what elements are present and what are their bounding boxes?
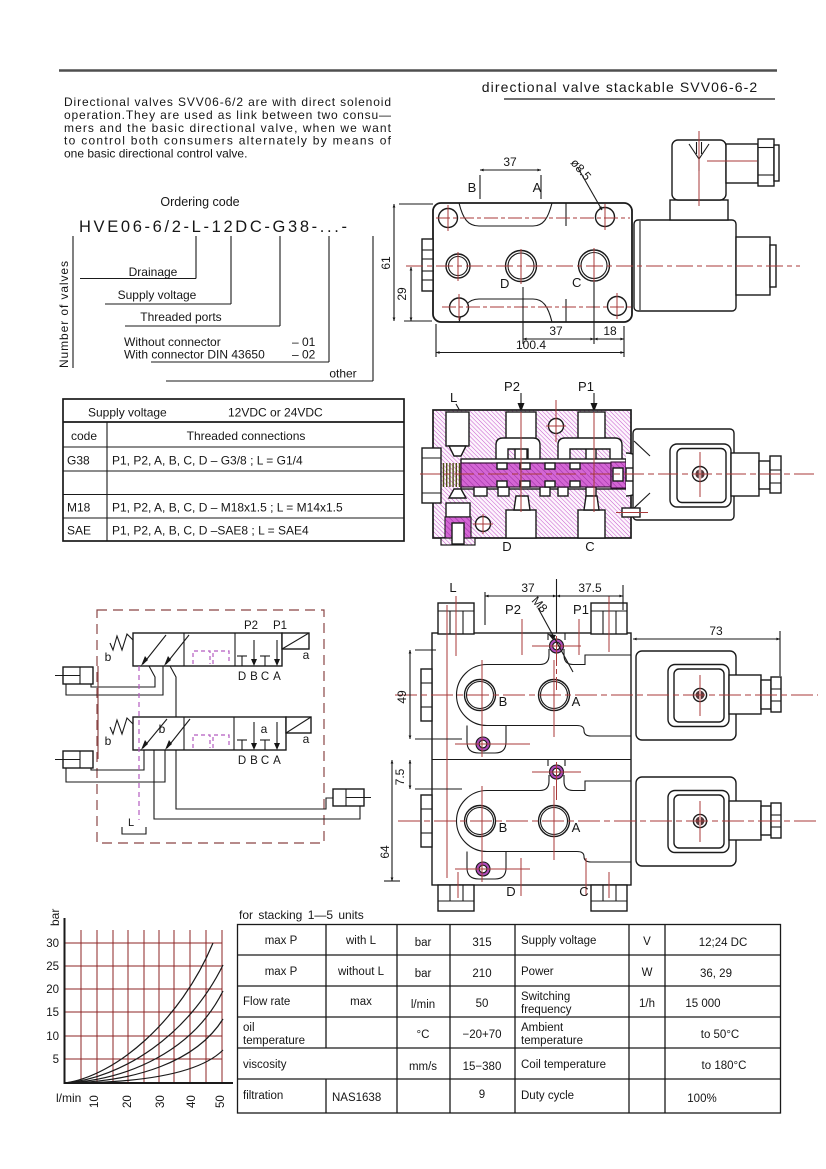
svg-text:SAE: SAE bbox=[67, 524, 91, 538]
svg-text:100.4: 100.4 bbox=[516, 338, 546, 352]
svg-text:12;24 DC: 12;24 DC bbox=[699, 937, 748, 949]
svg-text:L: L bbox=[450, 390, 457, 405]
svg-text:A: A bbox=[572, 694, 581, 709]
svg-text:b: b bbox=[159, 722, 166, 736]
svg-text:B: B bbox=[250, 671, 258, 683]
svg-text:20: 20 bbox=[122, 1095, 134, 1108]
svg-text:P1: P1 bbox=[273, 620, 287, 632]
svg-text:20: 20 bbox=[46, 984, 59, 996]
svg-text:A: A bbox=[572, 820, 581, 835]
svg-text:Supply voltage: Supply voltage bbox=[118, 288, 197, 302]
svg-text:bar: bar bbox=[415, 968, 432, 980]
svg-text:25: 25 bbox=[46, 961, 59, 973]
svg-text:D: D bbox=[238, 755, 246, 767]
svg-text:P2: P2 bbox=[505, 602, 521, 617]
svg-text:D: D bbox=[502, 539, 511, 554]
svg-text:temperature: temperature bbox=[521, 1035, 583, 1047]
svg-text:100%: 100% bbox=[687, 1093, 716, 1105]
svg-text:36, 29: 36, 29 bbox=[700, 968, 732, 980]
svg-text:Threaded ports: Threaded ports bbox=[140, 310, 221, 324]
svg-text:15: 15 bbox=[46, 1007, 59, 1019]
svg-text:315: 315 bbox=[472, 937, 491, 949]
svg-text:P1: P1 bbox=[578, 379, 594, 394]
svg-text:oil: oil bbox=[243, 1022, 255, 1034]
svg-text:Coil temperature: Coil temperature bbox=[521, 1059, 606, 1071]
svg-text:With connector DIN 43650: With connector DIN 43650 bbox=[124, 348, 265, 362]
svg-text:bar: bar bbox=[48, 909, 62, 926]
svg-text:Flow rate: Flow rate bbox=[243, 996, 290, 1008]
svg-text:max: max bbox=[350, 996, 372, 1008]
svg-text:B: B bbox=[499, 820, 508, 835]
svg-text:C: C bbox=[585, 539, 594, 554]
svg-text:to 50°C: to 50°C bbox=[701, 1029, 739, 1041]
svg-text:P2: P2 bbox=[504, 379, 520, 394]
svg-text:bar: bar bbox=[415, 937, 432, 949]
svg-text:50: 50 bbox=[215, 1095, 227, 1108]
svg-text:temperature: temperature bbox=[243, 1035, 305, 1047]
svg-text:D: D bbox=[500, 276, 509, 291]
svg-text:Ordering code: Ordering code bbox=[160, 195, 239, 209]
svg-text:37: 37 bbox=[521, 581, 535, 595]
svg-text:64: 64 bbox=[378, 845, 392, 859]
svg-text:18: 18 bbox=[603, 324, 617, 338]
svg-text:10: 10 bbox=[46, 1031, 59, 1043]
svg-text:C: C bbox=[579, 884, 588, 899]
svg-text:W: W bbox=[642, 967, 653, 979]
svg-text:viscosity: viscosity bbox=[243, 1059, 287, 1071]
svg-text:−20+70: −20+70 bbox=[462, 1029, 501, 1041]
svg-text:12VDC or 24VDC: 12VDC or 24VDC bbox=[228, 406, 323, 420]
svg-text:29: 29 bbox=[395, 287, 409, 301]
svg-text:Threaded connections: Threaded connections bbox=[187, 429, 306, 443]
svg-text:50: 50 bbox=[476, 998, 489, 1010]
svg-text:filtration: filtration bbox=[243, 1090, 283, 1102]
svg-text:P1, P2, A, B, C, D –SAE8 ; L =: P1, P2, A, B, C, D –SAE8 ; L = SAE4 bbox=[112, 524, 309, 538]
svg-text:mm/s: mm/s bbox=[409, 1061, 437, 1073]
svg-text:5: 5 bbox=[53, 1054, 59, 1066]
svg-text:30: 30 bbox=[46, 938, 59, 950]
svg-text:with L: with L bbox=[345, 935, 377, 947]
svg-text:one basic directional control: one basic directional control valve. bbox=[64, 147, 247, 161]
svg-text:l/min: l/min bbox=[411, 999, 435, 1011]
svg-text:D: D bbox=[238, 671, 246, 683]
svg-text:Supply voltage: Supply voltage bbox=[521, 935, 596, 947]
svg-text:mers and the basic directional: mers and the basic directional valve, wh… bbox=[64, 121, 392, 135]
svg-text:15 000: 15 000 bbox=[685, 998, 720, 1010]
svg-text:30: 30 bbox=[155, 1095, 167, 1108]
svg-text:for stacking 1—5 units: for stacking 1—5 units bbox=[239, 908, 364, 922]
svg-text:operation.They are used as lin: operation.They are used as link between … bbox=[64, 108, 391, 122]
svg-text:to 180°C: to 180°C bbox=[702, 1060, 747, 1072]
svg-text:Supply voltage: Supply voltage bbox=[88, 406, 167, 420]
svg-text:37: 37 bbox=[549, 324, 563, 338]
svg-text:B: B bbox=[499, 694, 508, 709]
svg-text:code: code bbox=[71, 429, 97, 443]
svg-text:Directional valves SVV06-6/2 a: Directional valves SVV06-6/2 are with di… bbox=[64, 95, 391, 109]
svg-text:A: A bbox=[533, 180, 542, 195]
svg-text:without L: without L bbox=[337, 966, 385, 978]
svg-text:a: a bbox=[303, 648, 310, 662]
svg-text:frequency: frequency bbox=[521, 1004, 572, 1016]
svg-text:7.5: 7.5 bbox=[393, 768, 407, 785]
svg-text:max P: max P bbox=[265, 935, 298, 947]
svg-text:L: L bbox=[449, 580, 456, 595]
svg-text:l/min: l/min bbox=[56, 1091, 81, 1105]
svg-text:a: a bbox=[261, 722, 268, 736]
svg-text:Number of valves: Number of valves bbox=[57, 261, 71, 368]
svg-text:10: 10 bbox=[89, 1095, 101, 1108]
svg-text:Drainage: Drainage bbox=[129, 265, 178, 279]
svg-text:V: V bbox=[643, 936, 651, 948]
svg-text:210: 210 bbox=[472, 968, 491, 980]
svg-text:Switching: Switching bbox=[521, 991, 570, 1003]
svg-text:L: L bbox=[128, 817, 134, 829]
svg-text:M18: M18 bbox=[67, 501, 91, 515]
svg-text:15−380: 15−380 bbox=[463, 1061, 502, 1073]
svg-text:a: a bbox=[303, 732, 310, 746]
svg-text:°C: °C bbox=[417, 1029, 430, 1041]
svg-text:9: 9 bbox=[479, 1089, 485, 1101]
svg-text:P2: P2 bbox=[244, 620, 258, 632]
svg-text:P1: P1 bbox=[573, 602, 589, 617]
svg-text:49: 49 bbox=[395, 690, 409, 704]
svg-text:– 02: – 02 bbox=[292, 348, 316, 362]
svg-text:61: 61 bbox=[379, 256, 393, 270]
svg-text:B: B bbox=[250, 755, 258, 767]
svg-text:40: 40 bbox=[186, 1095, 198, 1108]
svg-text:b: b bbox=[105, 650, 112, 664]
svg-text:Power: Power bbox=[521, 966, 554, 978]
svg-text:P1, P2, A, B, C, D – M18x1.5 ;: P1, P2, A, B, C, D – M18x1.5 ; L = M14x1… bbox=[112, 501, 343, 515]
svg-text:D: D bbox=[506, 884, 515, 899]
svg-text:C: C bbox=[572, 275, 581, 290]
svg-text:b: b bbox=[105, 734, 112, 748]
svg-text:B: B bbox=[468, 180, 477, 195]
svg-text:NAS1638: NAS1638 bbox=[332, 1092, 381, 1104]
svg-text:37: 37 bbox=[503, 155, 517, 169]
svg-text:73: 73 bbox=[709, 624, 723, 638]
svg-text:1/h: 1/h bbox=[639, 998, 655, 1010]
svg-text:Duty cycle: Duty cycle bbox=[521, 1090, 574, 1102]
svg-text:other: other bbox=[329, 367, 356, 381]
svg-text:C: C bbox=[261, 755, 269, 767]
svg-text:C: C bbox=[261, 671, 269, 683]
svg-text:P1, P2, A, B, C, D – G3/8 ; L: P1, P2, A, B, C, D – G3/8 ; L = G1/4 bbox=[112, 454, 303, 468]
svg-text:max P: max P bbox=[265, 966, 298, 978]
svg-text:A: A bbox=[273, 671, 281, 683]
svg-text:A: A bbox=[273, 755, 281, 767]
svg-text:G38: G38 bbox=[67, 454, 90, 468]
svg-text:Ambient: Ambient bbox=[521, 1022, 564, 1034]
svg-text:37.5: 37.5 bbox=[578, 581, 602, 595]
svg-text:directional valve stackable: directional valve stackable SVV06-6-2 bbox=[482, 79, 759, 95]
